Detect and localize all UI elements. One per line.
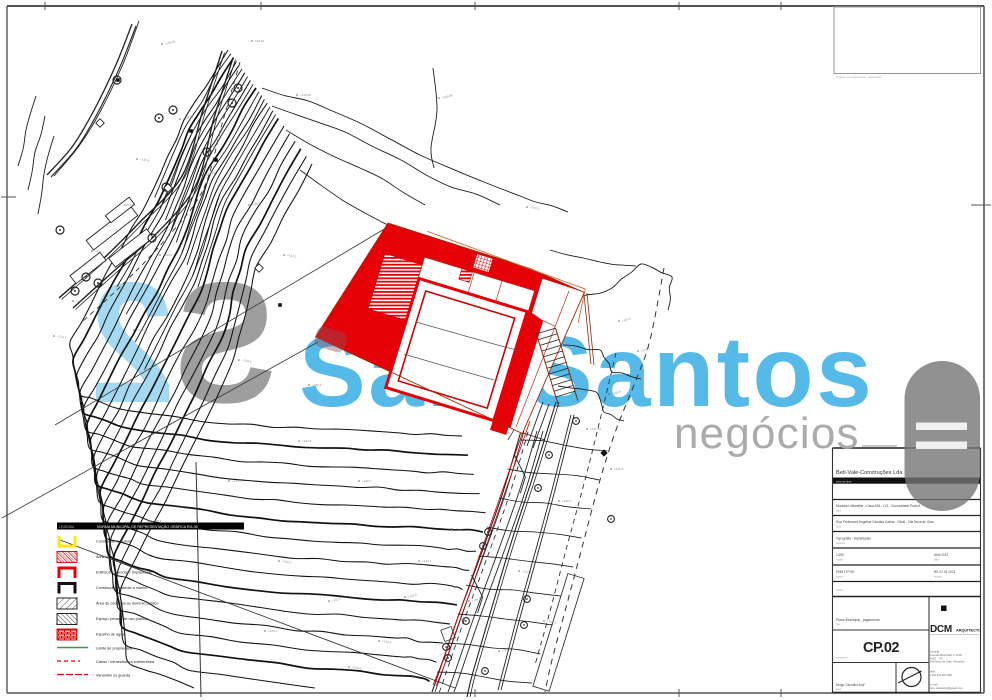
svg-text:+136.2: +136.2 [312,383,322,387]
svg-text:Cabos / Infraestrutura subterr: Cabos / Infraestrutura subterrânea [96,660,155,664]
svg-text:Espelho de água: Espelho de água [96,633,125,637]
svg-text:4410 - 175: 4410 - 175 [930,656,943,660]
svg-text:+135.3: +135.3 [501,647,511,653]
svg-text:Avenida Beira Mar nº 1234: Avenida Beira Mar nº 1234 [930,653,963,657]
svg-text:+125.2: +125.2 [76,299,86,303]
svg-text:PNM LTP 06: PNM LTP 06 [836,570,854,574]
svg-text:+131.5: +131.5 [331,597,341,603]
svg-text:+145.06: +145.06 [441,93,453,100]
svg-text:Área de cedência ao domínio pú: Área de cedência ao domínio público [96,602,158,606]
svg-text:+128.4: +128.4 [137,328,147,332]
svg-text:Construção a demolir: Construção a demolir [96,540,133,544]
svg-text:+145.3: +145.3 [530,205,540,211]
svg-text:Diogo Carvalho Arqº: Diogo Carvalho Arqº [836,683,866,687]
svg-text:+139.25: +139.25 [164,39,176,46]
svg-text:+140.2: +140.2 [614,467,624,471]
svg-text:registo: registo [836,576,844,579]
svg-text:+137.46: +137.46 [522,569,534,575]
svg-text:dono de obra: dono de obra [836,479,852,483]
svg-text:+132.6: +132.6 [407,593,417,599]
svg-text:Varandim ou guarda: Varandim ou guarda [96,674,131,678]
svg-text:CP.02: CP.02 [863,640,899,656]
svg-text:dcm.arquitecto@gmail.com: dcm.arquitecto@gmail.com [930,686,963,690]
svg-text:local: local [836,526,841,529]
svg-text:+141.3: +141.3 [287,253,297,259]
svg-text:Limite de propriedade: Limite de propriedade [96,647,133,651]
svg-text:desenho: desenho [836,542,846,545]
svg-text:+129.0: +129.0 [163,253,173,257]
svg-text:+139.1: +139.1 [562,499,572,503]
svg-text:Moradia Unifamiliar - Casa A35: Moradia Unifamiliar - Casa A35 - L13 - C… [836,504,921,508]
svg-text:Abril 2021: Abril 2021 [934,553,949,557]
svg-text:telef.: telef. [930,670,936,674]
svg-text:+128.3: +128.3 [152,519,162,523]
svg-text:notas: notas [836,588,843,592]
svg-text:autor: autor [836,688,842,691]
svg-text:e-mail: e-mail [930,683,938,687]
svg-text:+145.06: +145.06 [300,93,311,97]
svg-text:Espaço privado de uso público: Espaço privado de uso público [96,617,148,621]
svg-text:ARQUITECTO: ARQUITECTO [956,629,981,633]
svg-text:+135.7: +135.7 [362,479,372,483]
svg-text:Vila Nova de Gaia - Arcozelo: Vila Nova de Gaia - Arcozelo [930,660,965,664]
svg-text:+131.4: +131.4 [140,157,150,163]
svg-text:Plano Municipal_ pagamento: Plano Municipal_ pagamento [836,618,880,622]
svg-text:projecto de arquitectura - t: projecto de arquitectura - telas finais [836,75,882,79]
svg-text:+141.56: +141.56 [590,427,601,431]
svg-text:+130.2: +130.2 [282,559,292,565]
svg-text:negócios: negócios [674,409,860,458]
svg-text:+124.1: +124.1 [57,334,67,340]
svg-text:morada: morada [930,650,940,654]
svg-text:Beti-Vale-Construções Lda: Beti-Vale-Construções Lda [836,470,903,476]
svg-text:NORMA MUNICIPAL DE REPRESENTAÇ: NORMA MUNICIPAL DE REPRESENTAÇÃO GRÁFICA… [97,524,198,529]
svg-text:DCM: DCM [930,624,952,635]
svg-text:LEGENDA: LEGENDA [59,525,75,529]
svg-text:1:200: 1:200 [836,553,844,557]
svg-text:+133.4: +133.4 [422,559,432,563]
svg-text:Edifícios a licenciar / Implan: Edifícios a licenciar / Implantação [96,571,152,575]
svg-text:+131.1: +131.1 [232,479,242,483]
svg-text:fase: fase [836,623,841,626]
svg-text:Construção existente a manter: Construção existente a manter [96,586,148,590]
svg-text:data: data [934,559,939,562]
svg-text:obra: obra [836,510,841,513]
svg-text:139.16: 139.16 [255,39,265,43]
svg-text:RS 07 04 2021: RS 07 04 2021 [934,570,955,574]
svg-text:Rua Professora Angelina Cândid: Rua Professora Angelina Cândida Cabral -… [836,520,934,524]
svg-text:+131.8: +131.8 [202,299,212,303]
svg-text:+136.4: +136.4 [455,527,465,533]
svg-text:+130.9: +130.9 [382,639,392,645]
svg-text:+134.8: +134.8 [302,439,312,443]
svg-text:Topografia - Implantação: Topografia - Implantação [836,537,871,541]
svg-text:desenho nº: desenho nº [836,656,848,660]
svg-text:Área Verde: Área Verde [96,555,115,559]
svg-text:+136.2: +136.2 [547,619,557,625]
svg-text:revisão: revisão [934,576,942,579]
svg-text:+129.33: +129.33 [122,203,133,207]
svg-text:+134.52: +134.52 [182,114,194,121]
svg-text:+351 224 567 890: +351 224 567 890 [930,673,952,677]
svg-text:escala: escala [836,559,844,562]
svg-text:+129.1: +129.1 [268,629,278,633]
